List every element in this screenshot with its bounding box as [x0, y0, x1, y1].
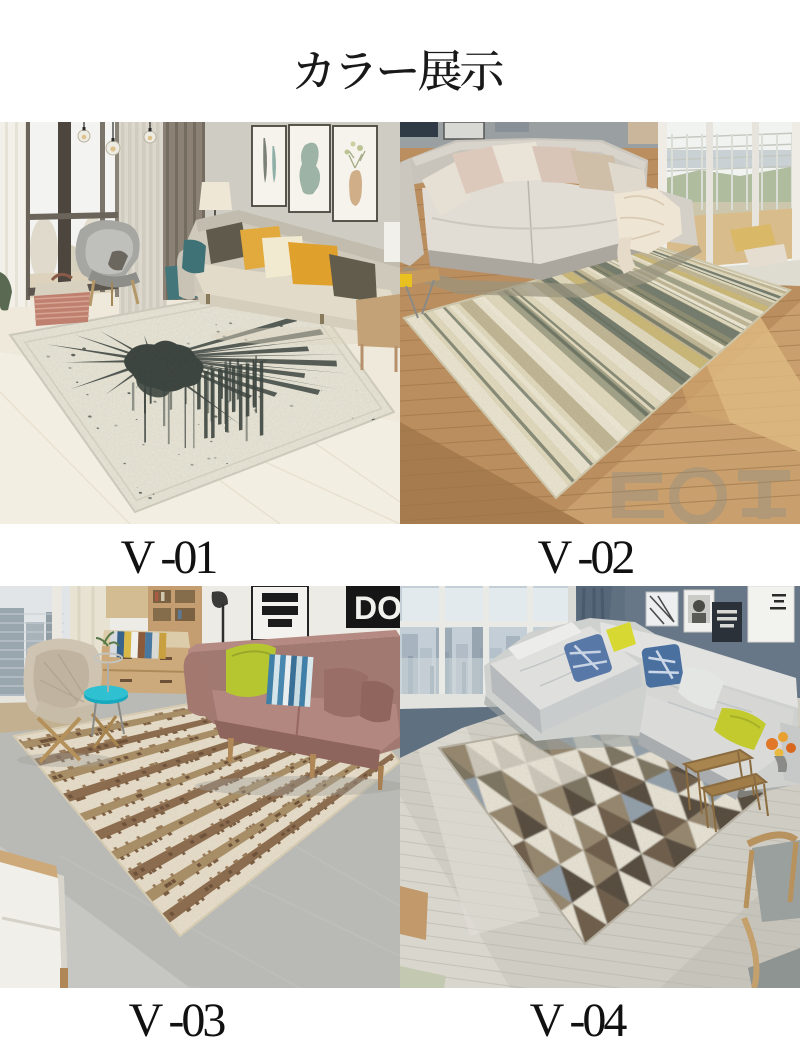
svg-text:DO: DO — [354, 590, 400, 626]
